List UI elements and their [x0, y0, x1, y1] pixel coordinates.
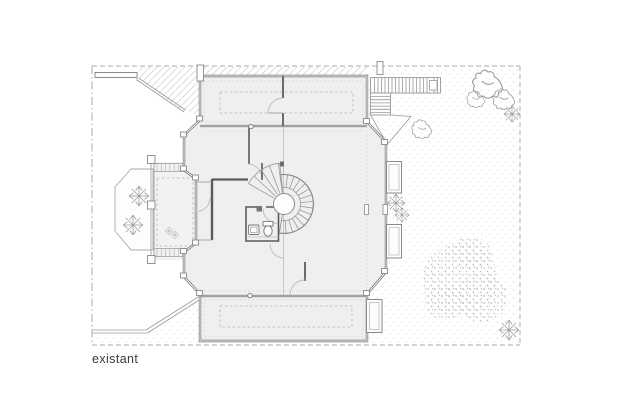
- stair-gate-post: [377, 62, 383, 75]
- column-marker: [248, 293, 252, 297]
- star-plant: [504, 106, 520, 122]
- floor-plan-drawing: [0, 0, 618, 412]
- floor-plan-canvas: existant: [0, 0, 618, 412]
- star-plant: [387, 194, 405, 212]
- star-plant: [129, 186, 149, 206]
- plan-label: existant: [92, 352, 138, 366]
- flue: [280, 162, 284, 167]
- building: [181, 65, 388, 341]
- star-plant: [499, 320, 519, 340]
- sink: [249, 225, 260, 235]
- star-plant: [123, 215, 143, 235]
- deck-planter: [115, 169, 153, 250]
- toilet: [263, 222, 273, 237]
- small-plant: [171, 231, 179, 239]
- chimney: [197, 65, 204, 81]
- column-marker: [249, 124, 253, 128]
- wall-pier: [257, 206, 263, 212]
- star-plant: [395, 208, 409, 222]
- small-plant: [165, 227, 173, 235]
